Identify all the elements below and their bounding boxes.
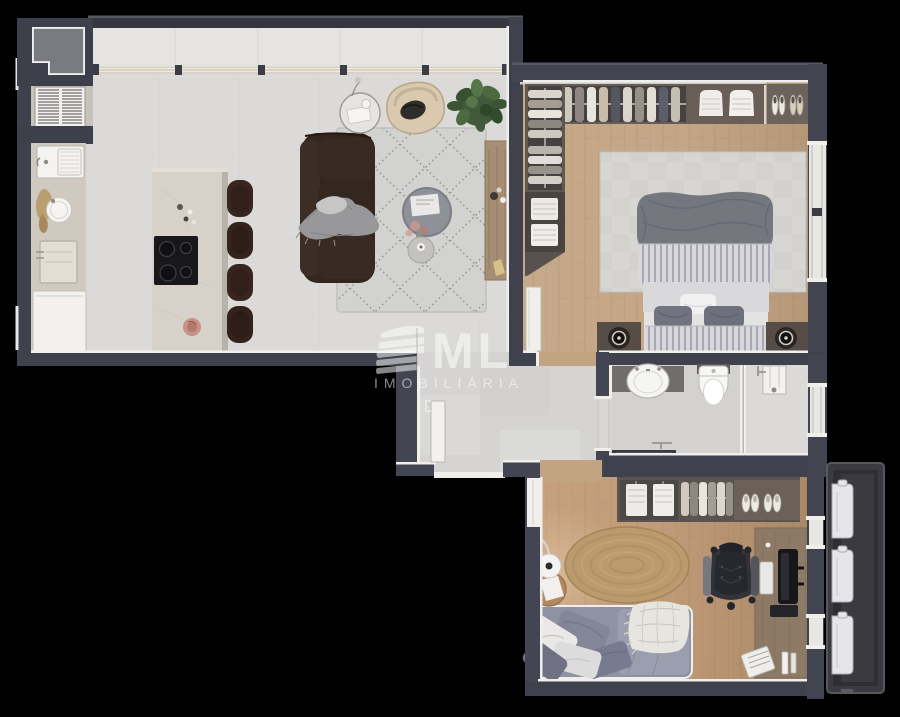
svg-text:ML: ML xyxy=(432,323,512,379)
svg-text:IMOBILIÁRIA: IMOBILIÁRIA xyxy=(374,375,524,391)
